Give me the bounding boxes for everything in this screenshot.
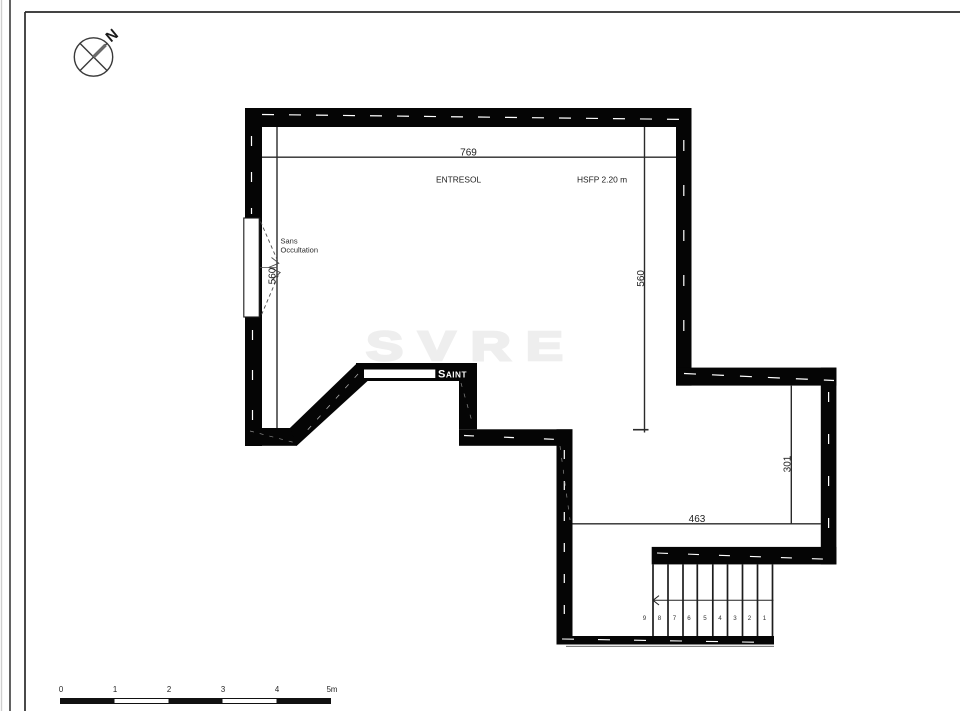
svg-text:4: 4 bbox=[718, 615, 722, 622]
svg-text:SVRE: SVRE bbox=[366, 323, 578, 369]
svg-text:2: 2 bbox=[167, 685, 171, 694]
svg-text:3: 3 bbox=[221, 685, 225, 694]
svg-text:769: 769 bbox=[460, 148, 477, 159]
svg-text:5m: 5m bbox=[327, 685, 338, 694]
svg-text:7: 7 bbox=[673, 615, 677, 622]
svg-text:6: 6 bbox=[687, 615, 691, 622]
svg-text:HSFP 2.20 m: HSFP 2.20 m bbox=[577, 175, 627, 185]
svg-text:8: 8 bbox=[658, 615, 662, 622]
svg-text:560: 560 bbox=[267, 267, 278, 284]
svg-text:9: 9 bbox=[643, 615, 647, 622]
svg-text:5: 5 bbox=[703, 615, 707, 622]
svg-text:2: 2 bbox=[748, 615, 752, 622]
svg-text:SAINT: SAINT bbox=[438, 369, 467, 381]
svg-text:1: 1 bbox=[763, 615, 767, 622]
svg-text:560: 560 bbox=[636, 270, 647, 287]
svg-text:0: 0 bbox=[59, 685, 64, 694]
svg-text:4: 4 bbox=[275, 685, 280, 694]
svg-text:1: 1 bbox=[113, 685, 117, 694]
svg-text:Occultation: Occultation bbox=[281, 246, 319, 255]
svg-text:3: 3 bbox=[733, 615, 737, 622]
svg-text:301: 301 bbox=[783, 455, 794, 472]
svg-text:463: 463 bbox=[689, 514, 706, 525]
svg-text:ENTRESOL: ENTRESOL bbox=[436, 175, 481, 185]
svg-text:Sans: Sans bbox=[281, 237, 298, 246]
